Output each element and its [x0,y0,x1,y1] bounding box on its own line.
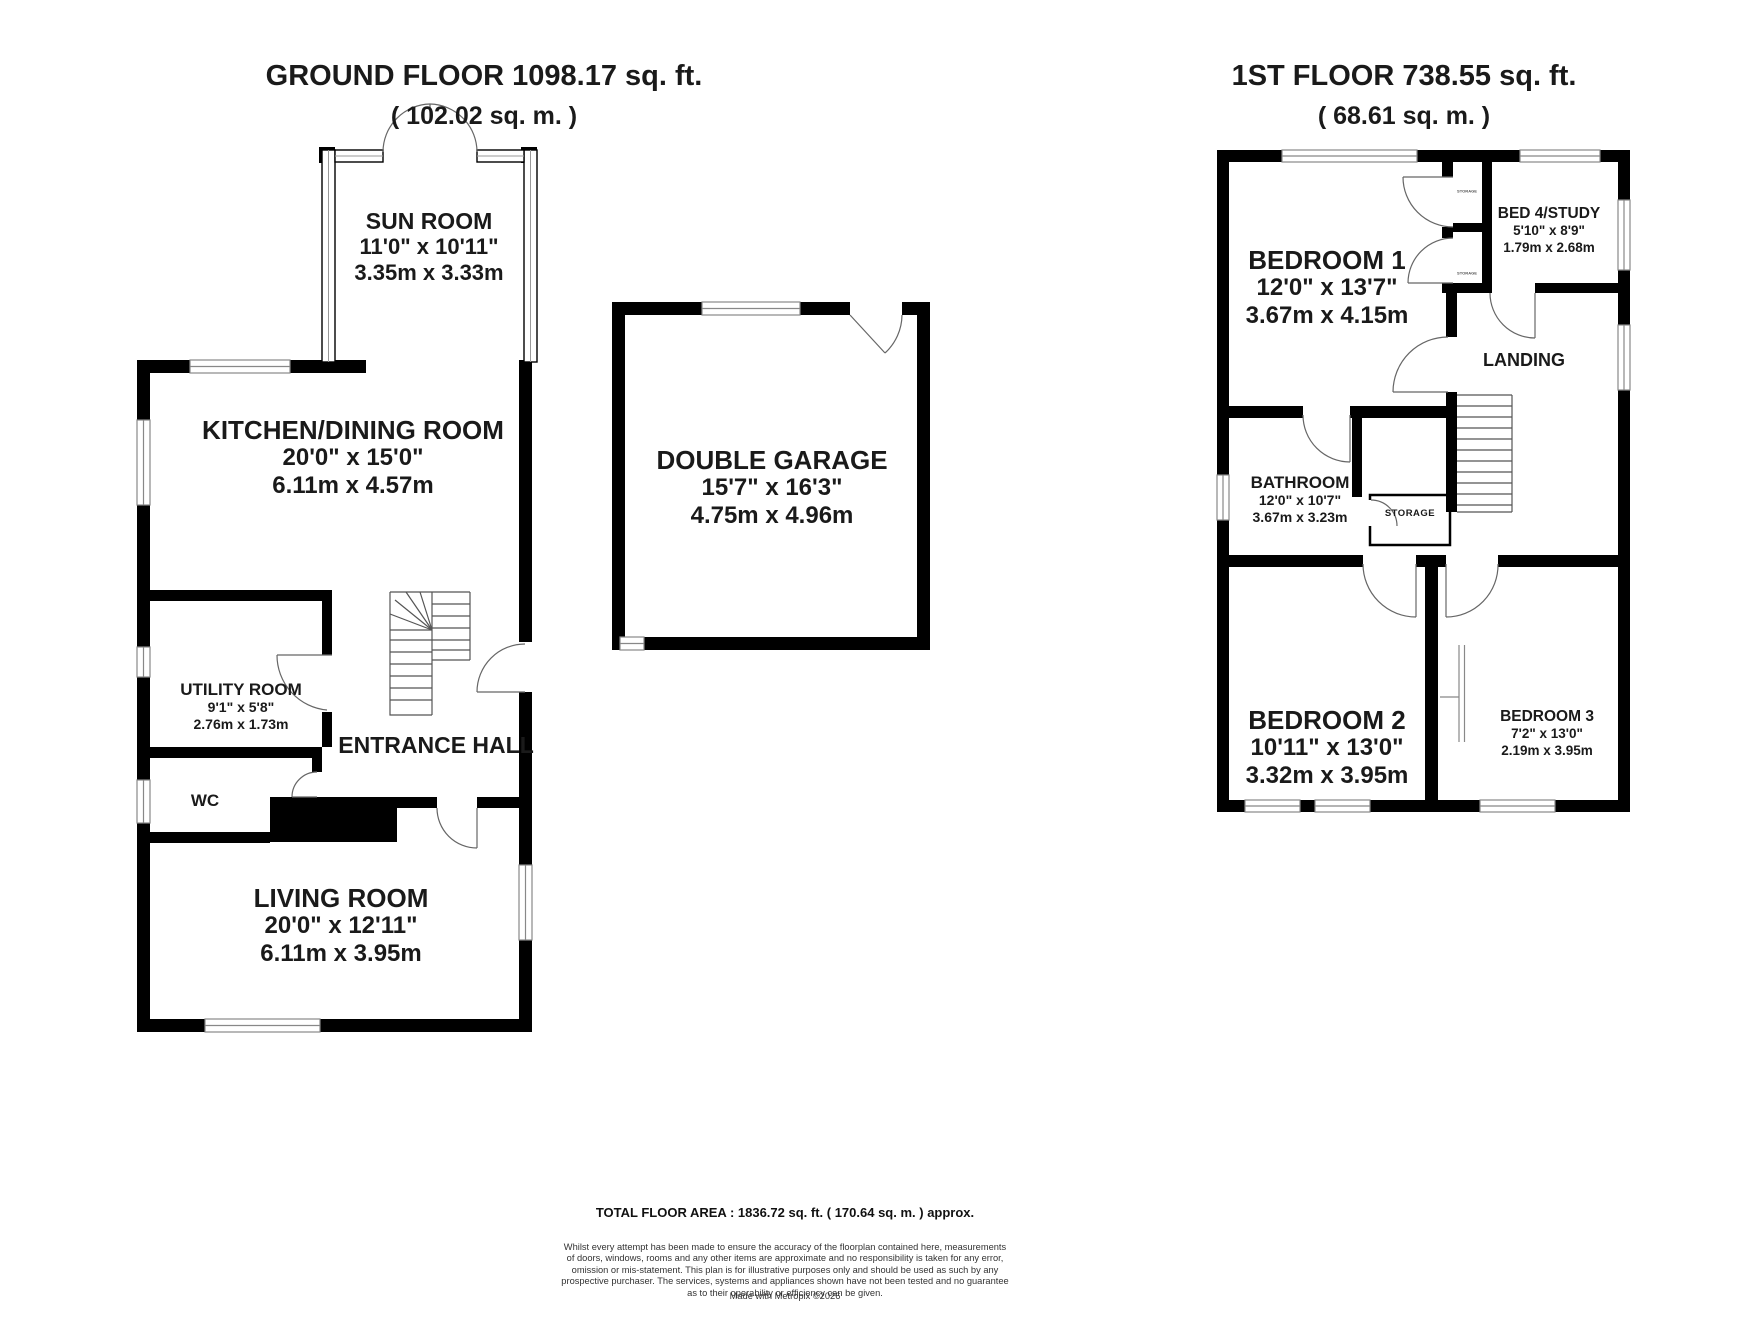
room-dims-metric: 3.67m x 4.15m [1246,302,1409,330]
room-dims-imperial: 5'10" x 8'9" [1498,222,1601,239]
room-dims-imperial: 12'0" x 10'7" [1251,492,1350,510]
room-name: SUN ROOM [354,208,503,234]
closet-label-1: STORAGE [1457,189,1477,194]
total-floor-area-text: TOTAL FLOOR AREA : 1836.72 sq. ft. ( 170… [596,1205,974,1220]
ground-floor-subtitle: ( 102.02 sq. m. ) [266,96,703,136]
room-name: LANDING [1483,350,1565,370]
room-dims-metric: 6.11m x 3.95m [254,940,429,968]
room-label-bed-4-study: BED 4/STUDY 5'10" x 8'9" 1.79m x 2.68m [1498,205,1601,256]
room-label-storage: STORAGE [1385,508,1435,519]
metropix-credit-text: Made with Metropix ©2026 [730,1291,841,1301]
room-name: BEDROOM 2 [1246,706,1409,734]
room-dims-imperial: 7'2" x 13'0" [1500,725,1594,742]
closet-label-text: STORAGE [1457,189,1477,194]
room-name: KITCHEN/DINING ROOM [202,416,504,444]
room-label-landing: LANDING [1483,350,1565,371]
room-dims-metric: 6.11m x 4.57m [202,472,504,500]
room-name: BATHROOM [1251,474,1350,492]
room-dims-imperial: 12'0" x 13'7" [1246,274,1409,302]
total-floor-area: TOTAL FLOOR AREA : 1836.72 sq. ft. ( 170… [596,1205,974,1220]
room-label-bedroom-3: BEDROOM 3 7'2" x 13'0" 2.19m x 3.95m [1500,708,1594,759]
room-dims-imperial: 10'11" x 13'0" [1246,734,1409,762]
room-name: DOUBLE GARAGE [656,446,887,474]
room-dims-imperial: 15'7" x 16'3" [656,474,887,502]
closet-label-2: STORAGE [1457,271,1477,276]
room-label-bedroom-1: BEDROOM 1 12'0" x 13'7" 3.67m x 4.15m [1246,246,1409,330]
staircase-ground [390,592,470,715]
disclaimer: Whilst every attempt has been made to en… [561,1230,1008,1300]
room-label-utility-room: UTILITY ROOM 9'1" x 5'8" 2.76m x 1.73m [180,681,302,734]
room-dims-metric: 2.19m x 3.95m [1500,742,1594,759]
room-name: BEDROOM 1 [1246,246,1409,274]
room-dims-metric: 3.67m x 3.23m [1251,509,1350,527]
room-name: WC [191,791,219,810]
wardrobe-lines [1440,645,1465,742]
room-dims-imperial: 20'0" x 15'0" [202,444,504,472]
room-name: UTILITY ROOM [180,681,302,699]
first-floor-subtitle: ( 68.61 sq. m. ) [1232,96,1577,136]
storage-closet [1367,495,1450,545]
closet-label-text: STORAGE [1457,271,1477,276]
room-name: STORAGE [1385,508,1435,519]
room-dims-metric: 3.32m x 3.95m [1246,762,1409,790]
ground-floor-title-text: GROUND FLOOR 1098.17 sq. ft. [266,60,703,92]
garage-door [850,315,902,353]
room-label-living-room: LIVING ROOM 20'0" x 12'11" 6.11m x 3.95m [254,884,429,968]
room-dims-metric: 1.79m x 2.68m [1498,239,1601,256]
room-label-bedroom-2: BEDROOM 2 10'11" x 13'0" 3.32m x 3.95m [1246,706,1409,790]
room-label-wc: WC [191,791,219,811]
room-dims-imperial: 9'1" x 5'8" [180,699,302,717]
room-label-double-garage: DOUBLE GARAGE 15'7" x 16'3" 4.75m x 4.96… [656,446,887,530]
room-dims-imperial: 11'0" x 10'11" [354,234,503,260]
room-label-sun-room: SUN ROOM 11'0" x 10'11" 3.35m x 3.33m [354,208,503,286]
ground-floor-title: GROUND FLOOR 1098.17 sq. ft. ( 102.02 sq… [266,56,703,136]
room-name: ENTRANCE HALL [338,732,534,758]
metropix-credit: Made with Metropix ©2026 [730,1291,841,1301]
room-name: LIVING ROOM [254,884,429,912]
room-label-entrance-hall: ENTRANCE HALL [338,732,534,759]
room-label-bathroom: BATHROOM 12'0" x 10'7" 3.67m x 3.23m [1251,474,1350,527]
staircase-first [1457,395,1512,512]
first-floor-title: 1ST FLOOR 738.55 sq. ft. ( 68.61 sq. m. … [1232,56,1577,136]
room-dims-metric: 2.76m x 1.73m [180,716,302,734]
floorplan-canvas [0,0,1753,1342]
room-label-kitchen-dining: KITCHEN/DINING ROOM 20'0" x 15'0" 6.11m … [202,416,504,500]
first-floor-title-text: 1ST FLOOR 738.55 sq. ft. [1232,60,1577,92]
room-name: BED 4/STUDY [1498,205,1601,222]
disclaimer-text: Whilst every attempt has been made to en… [561,1242,1008,1298]
room-dims-imperial: 20'0" x 12'11" [254,912,429,940]
floorplan-page: GROUND FLOOR 1098.17 sq. ft. ( 102.02 sq… [0,0,1753,1342]
room-dims-metric: 3.35m x 3.33m [354,260,503,286]
room-name: BEDROOM 3 [1500,708,1594,725]
room-dims-metric: 4.75m x 4.96m [656,502,887,530]
